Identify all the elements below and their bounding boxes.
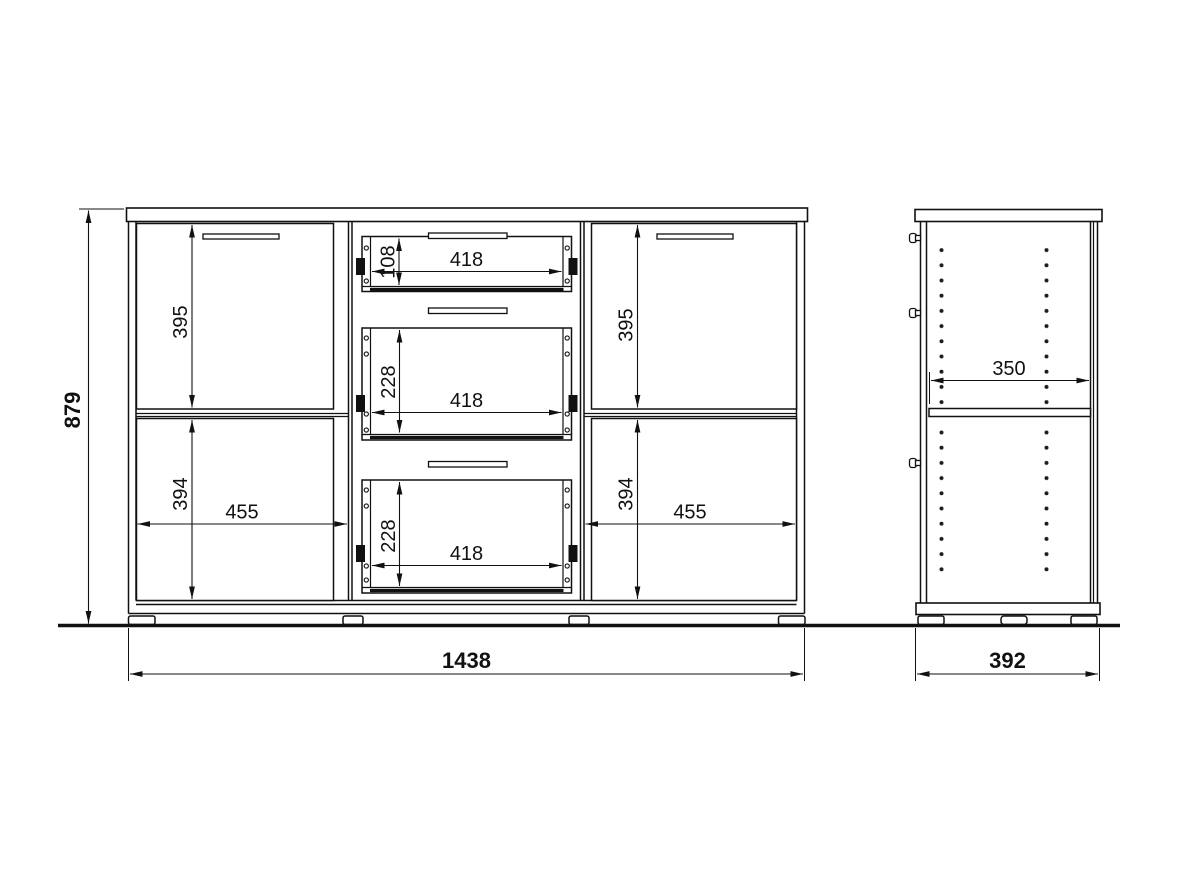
side-shelf	[929, 409, 1091, 417]
side-plinth	[916, 603, 1100, 615]
screw-hole	[364, 246, 368, 250]
screw-hole	[565, 352, 569, 356]
sideboard-dimension-drawing: 879 1438 392 350 395	[0, 0, 1180, 885]
side-foot-front	[1071, 616, 1097, 625]
dim-side-depth: 392	[916, 628, 1100, 681]
hinge-pin	[910, 309, 921, 318]
side-foot-middle	[1001, 616, 1027, 625]
hinge-pin	[910, 234, 921, 243]
dim-right-compartment-width-label: 455	[673, 502, 706, 524]
front-foot-1	[129, 616, 156, 625]
screw-hole	[565, 564, 569, 568]
front-top-panel	[127, 208, 808, 222]
dim-top-drawer-height: 108	[378, 239, 400, 286]
right-door-handle	[657, 234, 733, 239]
dim-top-drawer-width-label: 418	[450, 249, 483, 271]
side-view	[910, 210, 1103, 625]
dim-overall-width-label: 1438	[442, 648, 491, 673]
screw-hole	[565, 504, 569, 508]
dim-bottom-drawer-width-label: 418	[450, 543, 483, 565]
screw-hole	[364, 564, 368, 568]
screw-hole	[565, 246, 569, 250]
dim-lower-left-door-label: 394	[170, 477, 192, 510]
shelf-pin-holes-back-lower	[1042, 426, 1052, 576]
dim-bottom-drawer-height-label: 228	[378, 519, 400, 552]
screw-hole	[565, 412, 569, 416]
side-top-panel	[915, 210, 1102, 222]
left-door-handle	[203, 234, 279, 239]
middle-drawer-handle	[429, 308, 508, 314]
front-foot-2	[343, 616, 363, 625]
screw-hole	[364, 279, 368, 283]
dim-side-depth-label: 392	[989, 648, 1026, 673]
screw-hole	[565, 428, 569, 432]
dim-left-compartment-width-label: 455	[225, 502, 258, 524]
drawer-slide-latch	[569, 545, 578, 562]
dim-top-drawer-height-label: 108	[378, 245, 400, 278]
bottom-drawer-handle	[429, 462, 508, 468]
drawer-slide-latch	[356, 545, 365, 562]
dim-lower-right-door-label: 394	[616, 477, 638, 510]
screw-hole	[565, 279, 569, 283]
screw-hole	[364, 578, 368, 582]
dim-overall-height: 879	[60, 209, 124, 624]
screw-hole	[364, 488, 368, 492]
side-foot-back	[918, 616, 944, 625]
technical-drawing-canvas: 879 1438 392 350 395	[0, 0, 1180, 885]
top-drawer-handle	[429, 233, 508, 239]
screw-hole	[364, 352, 368, 356]
screw-hole	[565, 336, 569, 340]
screw-hole	[364, 504, 368, 508]
dim-overall-height-label: 879	[60, 392, 85, 429]
drawer-slide-latch	[356, 258, 365, 275]
screw-hole	[364, 336, 368, 340]
front-foot-3	[569, 616, 589, 625]
hinge-pin	[910, 459, 921, 468]
shelf-pin-holes-front-lower	[937, 426, 947, 576]
drawer-slide-latch	[569, 395, 578, 412]
dim-upper-right-door-label: 395	[616, 308, 638, 341]
screw-hole	[364, 428, 368, 432]
dim-middle-drawer-height-label: 228	[378, 365, 400, 398]
upper-left-door	[137, 224, 334, 410]
dim-shelf-depth: 350	[930, 358, 1090, 404]
drawer-slide-latch	[569, 258, 578, 275]
dim-middle-drawer-width-label: 418	[450, 390, 483, 412]
dim-overall-width: 1438	[129, 628, 805, 681]
drawer-slide-latch	[356, 395, 365, 412]
screw-hole	[565, 488, 569, 492]
dim-shelf-depth-label: 350	[992, 358, 1025, 380]
screw-hole	[565, 578, 569, 582]
front-foot-4	[779, 616, 806, 625]
dim-upper-left-door-label: 395	[170, 305, 192, 338]
screw-hole	[364, 412, 368, 416]
